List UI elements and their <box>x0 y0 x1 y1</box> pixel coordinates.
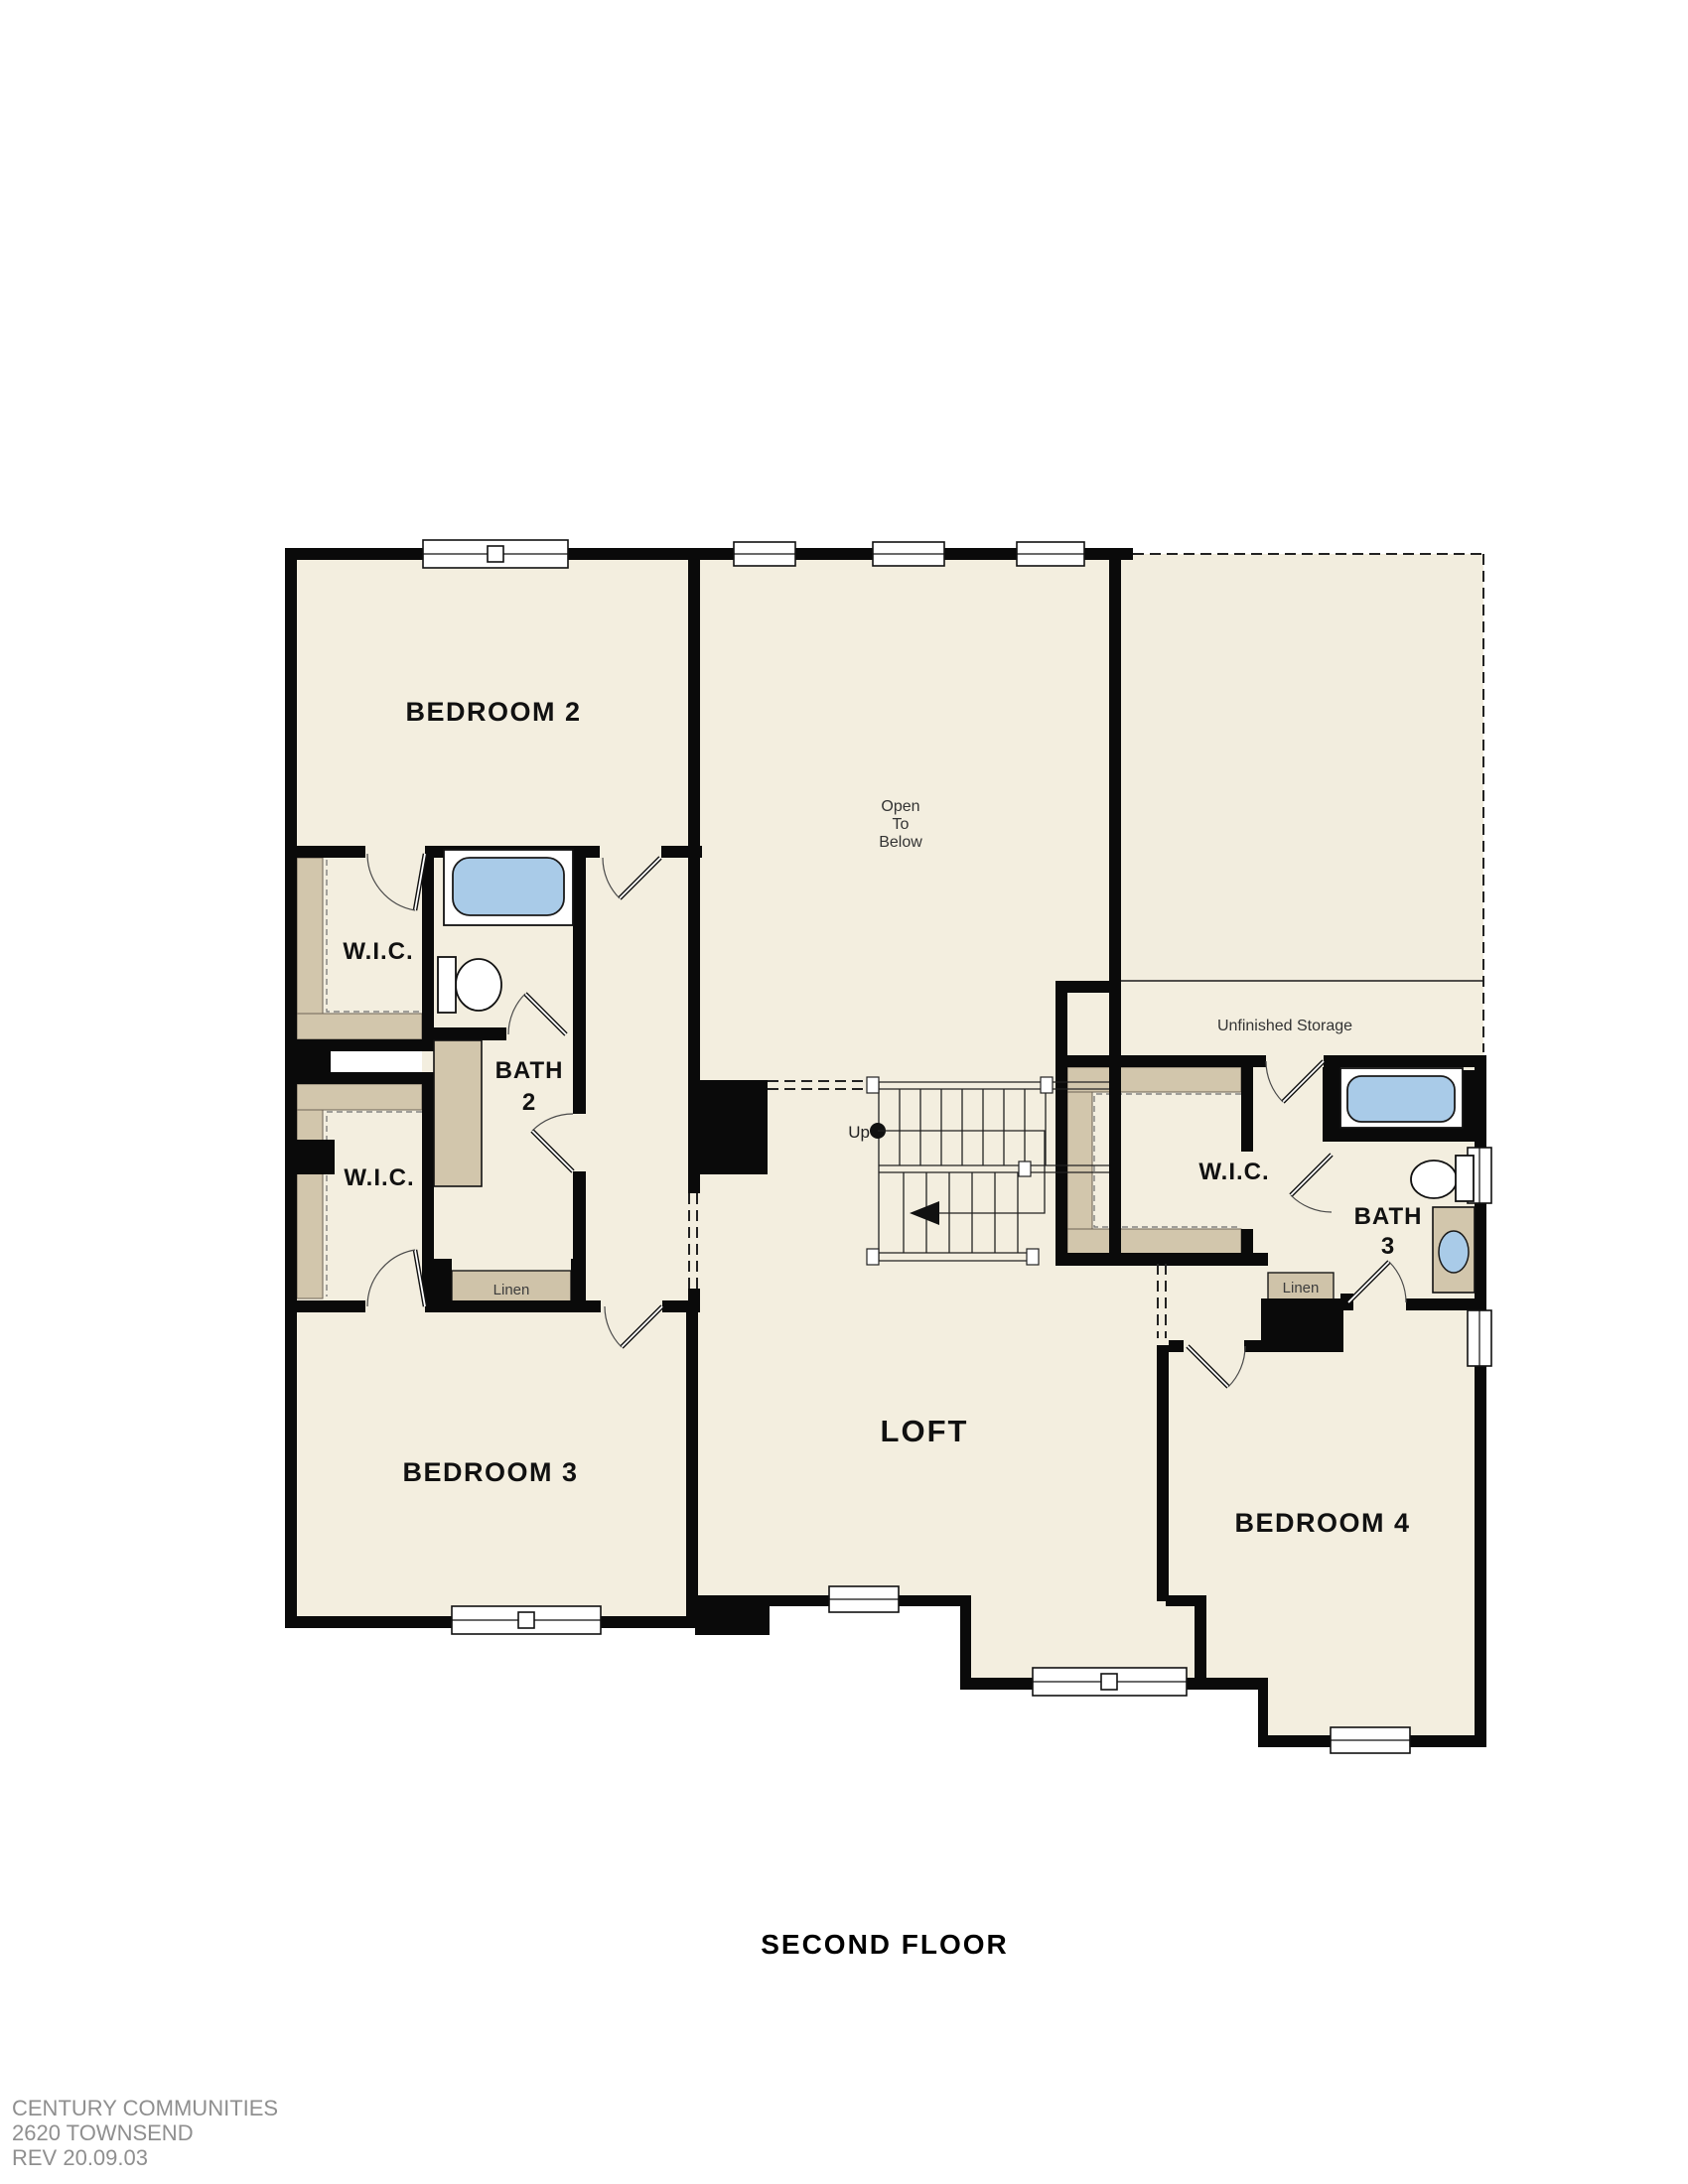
wicr-shelf-top <box>1067 1067 1241 1092</box>
bath2-toilet-bowl <box>456 959 501 1011</box>
door-opening-bedroom2 <box>600 846 661 858</box>
wall-stairwell-right <box>1109 993 1121 1259</box>
wall-bedroom4-left <box>1157 1345 1169 1601</box>
label-open-to-below-3: Below <box>879 834 922 851</box>
void-notch-left <box>331 1051 422 1072</box>
stair-post <box>1041 1077 1053 1093</box>
room-label-bath2-line1: BATH <box>495 1057 564 1084</box>
stair-post <box>1027 1249 1039 1265</box>
bath3-toilet-bowl <box>1411 1160 1457 1198</box>
wall-wicr-bottom <box>1055 1253 1268 1266</box>
wic1-shelf-bottom <box>297 1014 422 1039</box>
wall-bath3-left-lower <box>1241 1229 1253 1255</box>
label-linen-right: Linen <box>1283 1280 1320 1297</box>
room-label-wic-upper-left: W.I.C. <box>343 938 413 965</box>
stair-post <box>867 1249 879 1265</box>
wall-stair-chunk <box>692 1080 768 1174</box>
window-bedroom2-center <box>488 546 503 562</box>
wall-bath2-right-upper <box>573 928 586 1114</box>
room-label-bedroom3: BEDROOM 3 <box>402 1457 578 1487</box>
room-label-wic-right: W.I.C. <box>1198 1159 1269 1185</box>
wall-linenr-chunk <box>1261 1298 1343 1352</box>
wall-bath2-inner <box>434 1027 506 1040</box>
floor-plan-canvas: BEDROOM 2 BEDROOM 3 BEDROOM 4 LOFT W.I.C… <box>0 0 1688 2184</box>
wicr-shelf-bottom <box>1067 1229 1241 1254</box>
footer-company: CENTURY COMMUNITIES <box>12 2096 278 2120</box>
stair-post <box>1019 1161 1031 1176</box>
wic2-shelf-left <box>297 1110 323 1298</box>
wall-wic2-right <box>422 1084 434 1310</box>
wall-wic1-right <box>422 846 434 1051</box>
void-notch-bottom <box>1152 1690 1258 1747</box>
wall-loft-jog <box>960 1595 971 1690</box>
door-opening-wic2 <box>365 1300 425 1312</box>
bath3-tub <box>1347 1076 1455 1122</box>
wic1-shelf-left <box>297 858 323 1039</box>
bath2-tub <box>453 858 564 915</box>
wall-step-chunk <box>695 1595 770 1635</box>
room-label-bedroom2: BEDROOM 2 <box>405 697 581 727</box>
door-opening-wic1 <box>365 846 425 858</box>
room-label-bath3-line1: BATH <box>1354 1203 1423 1230</box>
wall-storage-left <box>1055 981 1067 1266</box>
wall-top <box>285 548 1133 560</box>
wic2-shelf-top <box>297 1084 422 1110</box>
page-title: SECOND FLOOR <box>761 1929 1009 1960</box>
label-open-to-below-1: Open <box>881 798 919 815</box>
bath2-toilet-tank <box>438 957 456 1013</box>
wall-wic-chunk <box>285 1039 331 1084</box>
wall-bath3-left-upper <box>1241 1067 1253 1152</box>
wall-tub3-left <box>1323 1067 1340 1142</box>
window-bedroom3-center <box>518 1612 534 1628</box>
wall-bedroom3-right <box>686 1300 698 1628</box>
wall-void-top <box>331 1039 434 1051</box>
attic-area-fill <box>1127 554 1483 981</box>
footer-plan-name: 2620 TOWNSEND <box>12 2120 194 2145</box>
label-stairs-up: Up <box>848 1123 870 1142</box>
wall-bedroom4-top-left <box>1169 1340 1184 1352</box>
room-label-loft: LOFT <box>881 1414 969 1448</box>
bath3-sink <box>1439 1231 1469 1273</box>
wall-bedroom4-top-right <box>1244 1340 1261 1352</box>
wall-centerright-upper <box>1109 548 1121 993</box>
wall-bath3-bottom <box>1406 1298 1486 1310</box>
stair-post <box>867 1077 879 1093</box>
label-unfinished-storage: Unfinished Storage <box>1217 1018 1352 1034</box>
window-loft-lower-center <box>1101 1674 1117 1690</box>
room-label-bedroom4: BEDROOM 4 <box>1234 1508 1410 1538</box>
bath3-toilet-tank <box>1456 1156 1474 1201</box>
label-open-to-below-2: To <box>893 816 910 833</box>
wall-tub3-bottom <box>1340 1128 1477 1142</box>
footer-revision: REV 20.09.03 <box>12 2145 148 2170</box>
room-label-bath3-line2: 3 <box>1381 1233 1395 1260</box>
label-linen-left: Linen <box>493 1282 530 1298</box>
bath2-vanity-outline <box>434 1040 482 1186</box>
wall-tub3-right <box>1463 1070 1477 1132</box>
door-opening-storage <box>1266 1055 1324 1067</box>
wall-left-outer <box>285 548 297 1628</box>
room-label-wic-lower-left: W.I.C. <box>344 1164 414 1191</box>
wall-left-pier <box>285 1140 335 1174</box>
wall-bath2-right-lower <box>573 1171 586 1271</box>
room-label-bath2-line2: 2 <box>522 1089 536 1116</box>
wall-void-bottom <box>331 1072 434 1084</box>
wall-bedroom4-jog-v <box>1195 1601 1206 1678</box>
door-opening-bedroom3 <box>601 1300 662 1312</box>
wall-tub2-right <box>573 846 586 928</box>
